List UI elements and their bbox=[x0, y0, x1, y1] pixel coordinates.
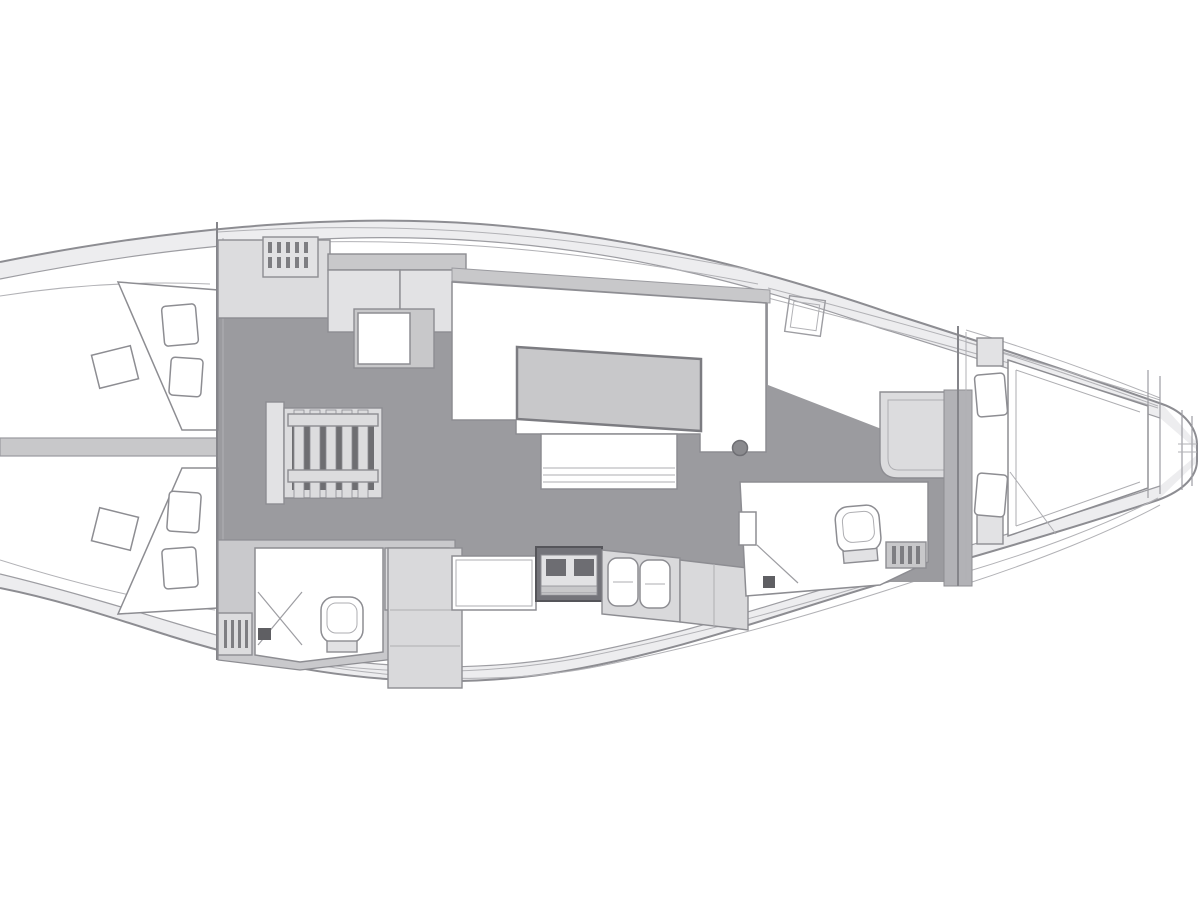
steps-side-plank bbox=[266, 402, 284, 504]
galley-tall-unit bbox=[388, 548, 462, 688]
step-rail-top bbox=[288, 414, 378, 426]
aft-cabin-starboard-shelf bbox=[91, 508, 138, 551]
pillow bbox=[162, 547, 199, 589]
head-door-leaf bbox=[739, 512, 756, 545]
aft-cabins-divider bbox=[0, 438, 217, 456]
pillow bbox=[169, 357, 204, 397]
nightstand bbox=[977, 338, 1003, 366]
galley-worktop bbox=[452, 556, 536, 610]
table-support-pole bbox=[733, 441, 748, 456]
burner bbox=[546, 559, 566, 576]
pillow bbox=[974, 473, 1008, 517]
door-hinge-block bbox=[258, 628, 271, 640]
door-hinge-block bbox=[763, 576, 775, 588]
aft-cabin-port-shelf bbox=[91, 346, 138, 389]
stove bbox=[536, 547, 602, 601]
floor-plan-canvas bbox=[0, 0, 1200, 901]
step-rail-bottom bbox=[288, 470, 378, 482]
toilet bbox=[321, 597, 363, 652]
companionway-steps bbox=[266, 402, 382, 504]
pillow bbox=[974, 373, 1008, 417]
aft-head-floor bbox=[255, 548, 383, 662]
stove-rail bbox=[541, 586, 597, 593]
pillow bbox=[167, 491, 202, 533]
nightstand bbox=[977, 514, 1003, 544]
mast-seat-top bbox=[358, 313, 410, 364]
sideboard-top-band bbox=[328, 254, 466, 270]
yacht-floor-plan bbox=[0, 0, 1200, 901]
salon-bench bbox=[541, 434, 677, 489]
pillow bbox=[161, 304, 198, 347]
salon-table bbox=[517, 347, 701, 431]
burner bbox=[574, 559, 594, 576]
